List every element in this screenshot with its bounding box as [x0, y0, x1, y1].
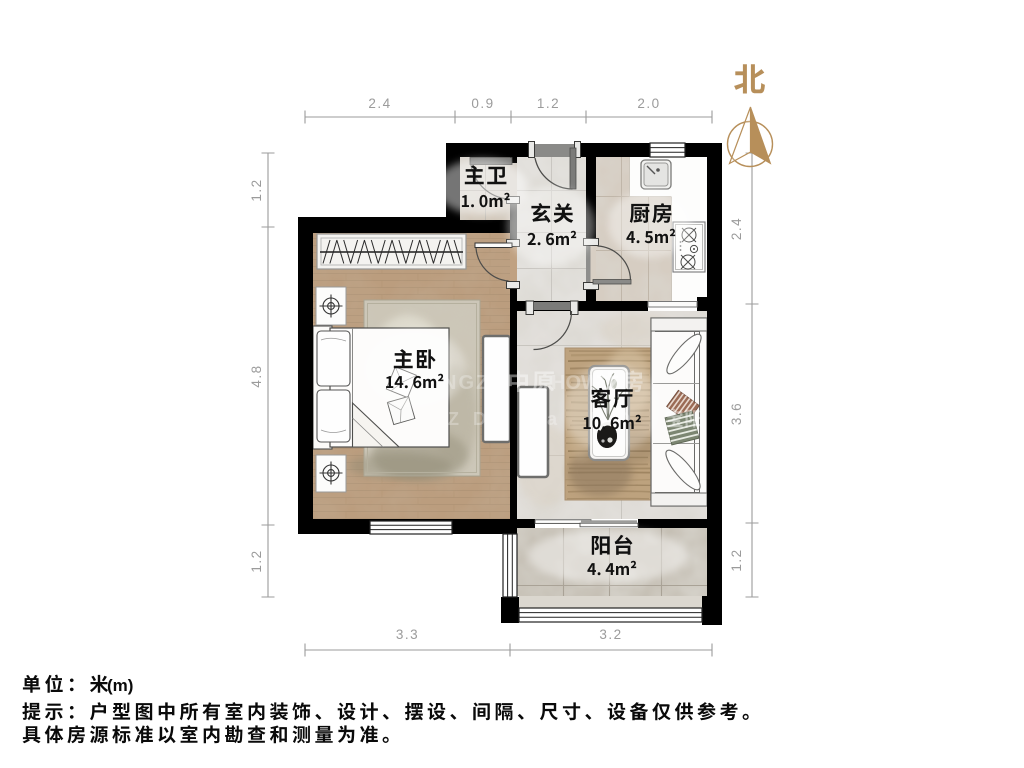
svg-text:3.2: 3.2: [599, 627, 622, 642]
svg-text:2.0: 2.0: [637, 96, 660, 111]
svg-text:2.4: 2.4: [368, 96, 391, 111]
svg-text:0.9: 0.9: [471, 96, 494, 111]
svg-text:(m): (m): [107, 676, 133, 695]
svg-text:3.3: 3.3: [396, 627, 419, 642]
svg-text:1.2: 1.2: [249, 178, 264, 201]
svg-text:3.6: 3.6: [729, 402, 744, 425]
svg-text:1.2: 1.2: [249, 549, 264, 572]
svg-text:1.2: 1.2: [537, 96, 560, 111]
svg-text:2.4: 2.4: [729, 217, 744, 240]
svg-text:1.2: 1.2: [729, 548, 744, 571]
svg-text:4.8: 4.8: [249, 364, 264, 387]
svg-text:NGZH: NGZH: [442, 372, 507, 394]
